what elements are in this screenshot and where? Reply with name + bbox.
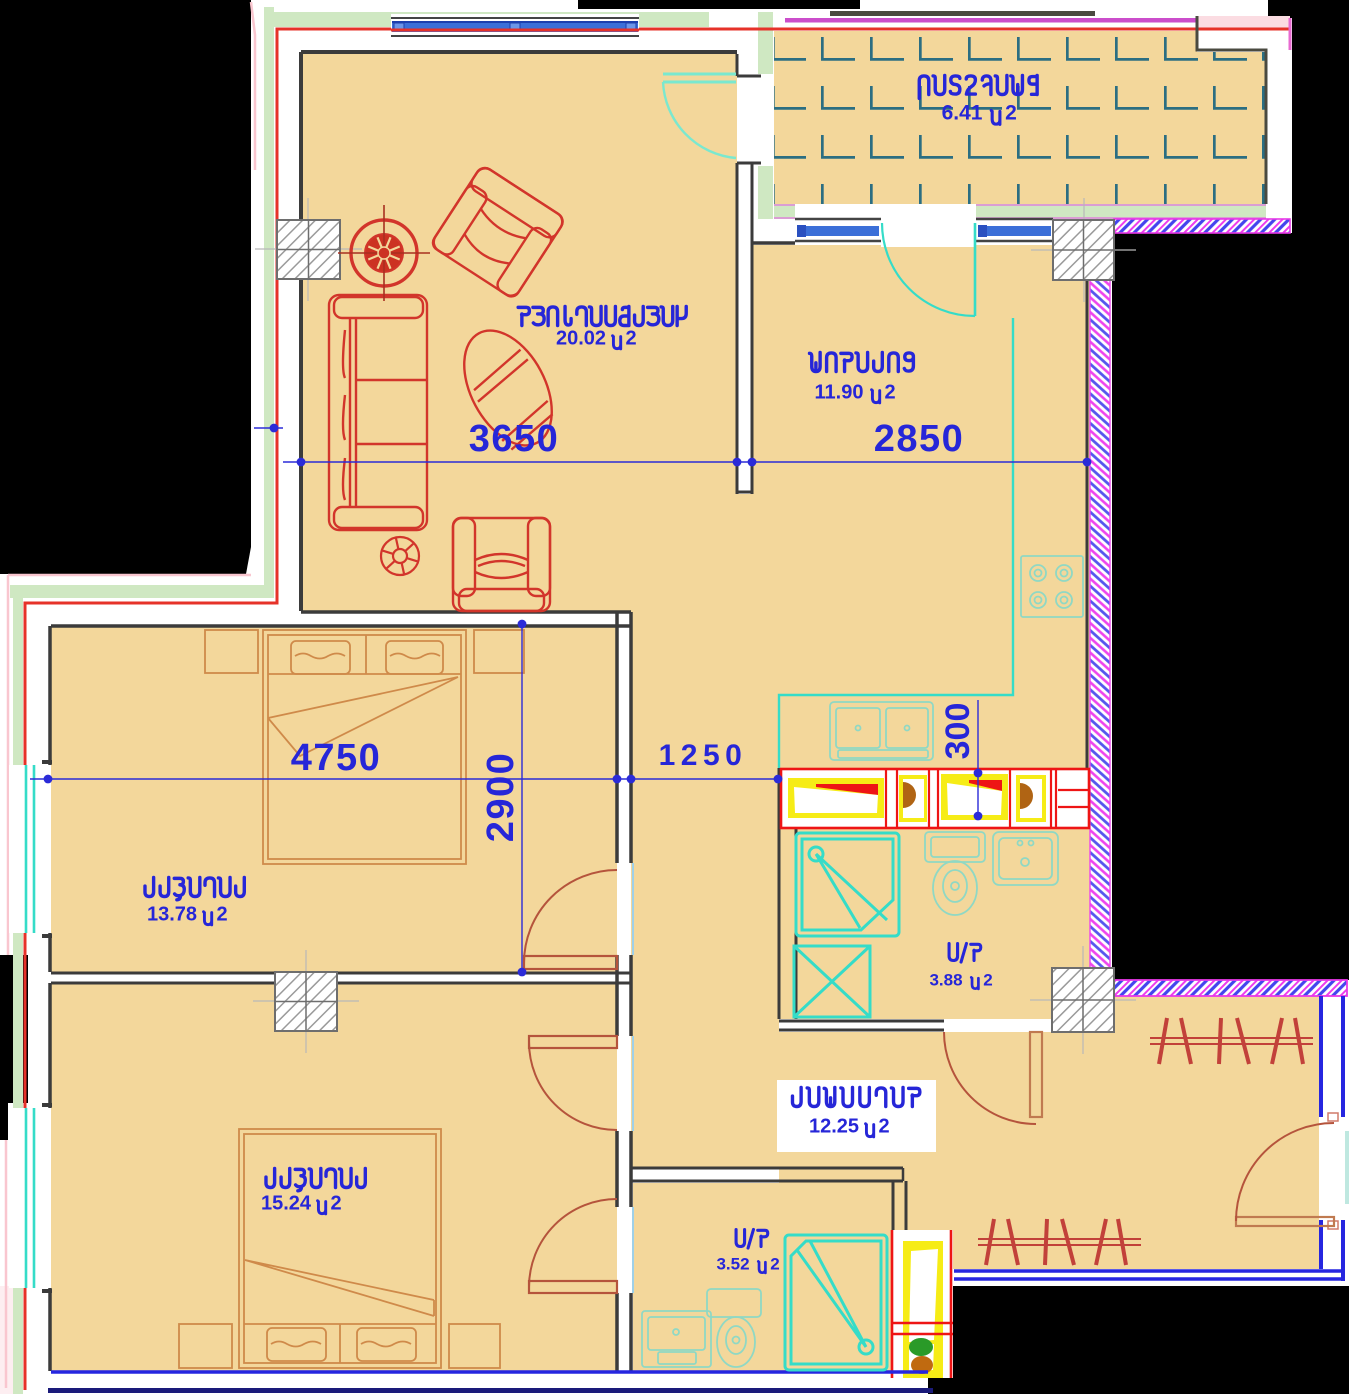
svg-text:3650: 3650: [469, 418, 560, 460]
svg-text:2: 2: [983, 970, 992, 989]
svg-text:2: 2: [1005, 102, 1017, 125]
svg-text:1250: 1250: [659, 739, 748, 772]
svg-text:3.52: 3.52: [716, 1254, 749, 1273]
svg-text:2: 2: [770, 1254, 779, 1273]
svg-text:2: 2: [625, 327, 636, 349]
svg-text:11.90: 11.90: [815, 381, 864, 403]
svg-text:2: 2: [216, 903, 227, 925]
svg-text:3.88: 3.88: [929, 970, 962, 989]
svg-text:15.24: 15.24: [261, 1192, 312, 1214]
svg-text:12.25: 12.25: [809, 1115, 859, 1137]
svg-text:2: 2: [330, 1192, 341, 1214]
svg-text:2: 2: [884, 381, 895, 403]
svg-text:2850: 2850: [874, 418, 965, 460]
svg-text:6.41: 6.41: [942, 102, 983, 125]
svg-text:13.78: 13.78: [147, 903, 197, 925]
svg-text:2900: 2900: [480, 752, 522, 843]
svg-text:4750: 4750: [291, 737, 382, 779]
svg-text:20.02: 20.02: [556, 327, 606, 349]
svg-text:300: 300: [939, 703, 977, 760]
svg-text:2: 2: [878, 1115, 889, 1137]
